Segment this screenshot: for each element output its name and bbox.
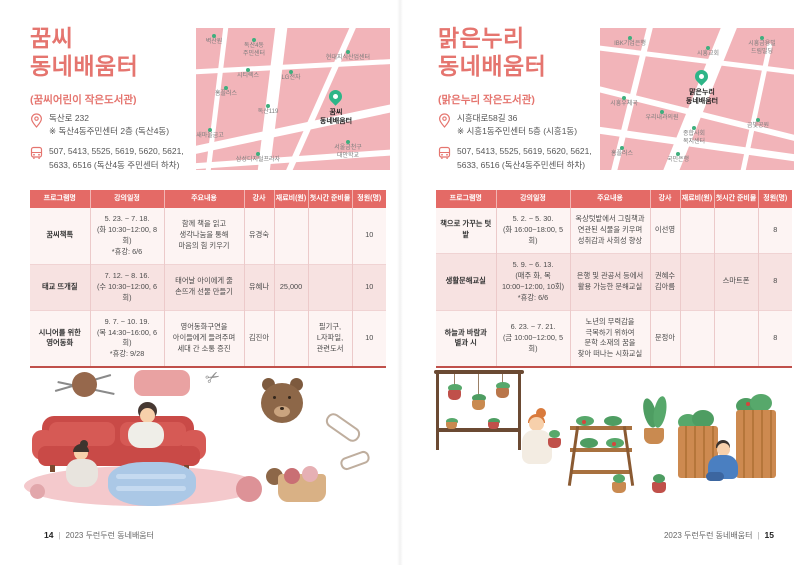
table-cell: 8 — [758, 253, 792, 310]
table-header-cell: 프로그램명 — [30, 190, 90, 208]
table-cell: 6. 23. ~ 7. 21. (금 10:00~12:00, 5회) — [496, 310, 570, 367]
table-cell: 유경숙 — [244, 208, 274, 264]
map-place: 독산4동 주민센터 — [225, 38, 283, 59]
table-cell: 은행 및 관공서 등에서 활용 가능한 문해교실 — [570, 253, 650, 310]
table-cell: 책으로 가꾸는 텃밭 — [436, 208, 496, 253]
safety-pin-icon — [323, 410, 363, 444]
table-header-cell: 강의일정 — [90, 190, 164, 208]
footer-divider: | — [58, 531, 60, 540]
address-row: 독산로 232※ 독산4동주민센터 2층 (독산4동) — [30, 112, 192, 138]
table-cell: 10 — [352, 310, 386, 367]
table-cell — [680, 253, 714, 310]
ground-pot — [652, 482, 666, 493]
table-header-cell: 주요내용 — [164, 190, 244, 208]
table-header-cell: 강의일정 — [496, 190, 570, 208]
table-cell: 필기구, L자파일, 관련도서 — [308, 310, 352, 367]
table-cell: 문정아 — [650, 310, 680, 367]
table-header-cell: 주요내용 — [570, 190, 650, 208]
map-place: 서울금천구 대안학교 — [319, 140, 377, 161]
knitted-blanket — [108, 462, 196, 506]
table-cell: 하늘과 바람과 별과 시 — [436, 310, 496, 367]
table-cell — [308, 208, 352, 264]
table-row: 태교 뜨개질7. 12. ~ 8. 16. (수 10:30~12:00, 6회… — [30, 264, 386, 310]
table-cell: 25,000 — [274, 264, 308, 310]
table-cell — [714, 310, 758, 367]
shelf-pot — [446, 422, 457, 429]
address-line1: 독산로 232 — [49, 113, 89, 123]
yarn-ball-pink — [236, 476, 262, 502]
knitted-swatch — [134, 370, 190, 396]
address-text: 독산로 232※ 독산4동주민센터 2층 (독산4동) — [49, 112, 169, 138]
hanging-rack-bar — [434, 370, 524, 374]
table-cell: 김진아 — [244, 310, 274, 367]
table-cell: 9. 7. ~ 10. 19. (목 14:30~16:00, 6회) *휴강:… — [90, 310, 164, 367]
map-place: 홈플러스 — [197, 86, 255, 99]
map-marker-pin — [326, 87, 344, 105]
table-cell: 유혜나 — [244, 264, 274, 310]
table-cell: 5. 2. ~ 5. 30. (화 16:00~18:00, 5회) — [496, 208, 570, 253]
person-head — [140, 408, 155, 423]
hanging-pot — [472, 400, 485, 410]
table-cell: 7. 12. ~ 8. 16. (수 10:30~12:00, 6회) — [90, 264, 164, 310]
address-line1: 시흥대로58길 36 — [457, 113, 517, 123]
table-cell: 생활문해교실 — [436, 253, 496, 310]
bear-face — [261, 383, 303, 423]
table-cell: 권혜수 김아름 — [650, 253, 680, 310]
table-header-row: 프로그램명강의일정주요내용강사재료비(원)첫시간 준비물정원(명) — [30, 190, 386, 208]
map-place: 시흥교회 — [679, 46, 737, 59]
map-marker-label: 꿈씨 동네배움터 — [301, 108, 371, 126]
map-place: LG전자 — [262, 70, 320, 83]
table-cell: 태어날 아이에게 줄 손뜨개 선물 만들기 — [164, 264, 244, 310]
left-page: 꿈씨 동네배움터 (꿈씨어린이 작은도서관) 독산로 232※ 독산4동주민센터… — [0, 0, 400, 565]
bus-icon — [30, 145, 44, 171]
table-cell: 영어동화구연을 아이들에게 들려주며 세대 간 소통 증진 — [164, 310, 244, 367]
stand-plant — [580, 438, 598, 448]
table-cell: 8 — [758, 208, 792, 253]
map-place: 금빛공원 — [729, 118, 787, 131]
map-place: 현대지식산업센터 — [319, 50, 377, 63]
table-cell: 5. 23. ~ 7. 18. (화 10:30~12:00, 8회) *휴강:… — [90, 208, 164, 264]
table-header-cell: 재료비(원) — [680, 190, 714, 208]
address-text: 시흥대로58길 36※ 시흥1동주민센터 5층 (시흥1동) — [457, 112, 577, 138]
gardener-leg — [706, 472, 724, 481]
table-cell: 5. 9. ~ 6. 13. (매주 화, 목 10:00~12:00, 10회… — [496, 253, 570, 310]
table-header-cell: 프로그램명 — [436, 190, 496, 208]
bus-text: 507, 5413, 5525, 5619, 5620, 5621,5633, … — [49, 145, 184, 171]
tall-plant-pot — [644, 428, 664, 444]
hanging-pot — [496, 388, 509, 398]
knitting-illustration: ✂ — [24, 370, 374, 515]
address-line2: ※ 시흥1동주민센터 5층 (시흥1동) — [457, 126, 577, 136]
held-pot — [548, 438, 561, 448]
right-page: 맑은누리 동네배움터 (맑은누리 작은도서관) 시흥대로58길 36※ 시흥1동… — [400, 0, 800, 565]
hanging-rack-post — [436, 372, 439, 450]
address-line2: ※ 독산4동주민센터 2층 (독산4동) — [49, 126, 169, 136]
program-table: 프로그램명강의일정주요내용강사재료비(원)첫시간 준비물정원(명) 책으로 가꾸… — [436, 190, 792, 368]
table-cell: 시니어를 위한 영어동화 — [30, 310, 90, 367]
footer-right: 2023 두런두런 동네배움터|15 — [664, 530, 774, 541]
scissors-icon: ✂ — [202, 366, 224, 390]
stand-shelf — [570, 470, 632, 474]
stand-plant — [604, 416, 622, 426]
bear-nose — [280, 407, 284, 410]
bear-eye — [273, 396, 276, 399]
bus-line2: 5633, 6516 (독산4동주민센터 하차) — [457, 160, 585, 170]
map-place: 시흥금융빌 드림빌딩 — [733, 36, 791, 57]
table-header-cell: 재료비(원) — [274, 190, 308, 208]
table-cell: 스마트폰 — [714, 253, 758, 310]
page-title: 맑은누리 동네배움터 — [438, 24, 546, 80]
bus-line1: 507, 5413, 5525, 5619, 5620, 5621, — [457, 146, 592, 156]
table-cell: 태교 뜨개질 — [30, 264, 90, 310]
tomato — [612, 442, 616, 446]
table-cell — [714, 208, 758, 253]
gardener-head — [529, 417, 544, 431]
table-cell: 8 — [758, 310, 792, 367]
map-place: 새마을금고 — [196, 128, 239, 141]
yarn-ball-small — [30, 484, 45, 499]
address-row: 시흥대로58길 36※ 시흥1동주민센터 5층 (시흥1동) — [438, 112, 600, 138]
table-header-cell: 강사 — [650, 190, 680, 208]
table-cell — [680, 310, 714, 367]
shelf-pot — [488, 422, 499, 429]
yarn-ball-in-basket — [302, 466, 318, 482]
blanket-stripe — [116, 474, 186, 479]
table-cell — [680, 208, 714, 253]
table-cell: 10 — [352, 208, 386, 264]
table-cell — [308, 264, 352, 310]
hanging-pot — [448, 390, 461, 400]
table-cell: 10 — [352, 264, 386, 310]
table-header-cell: 첫시간 준비물 — [714, 190, 758, 208]
table-cell — [274, 208, 308, 264]
table-row: 꿈씨책톡5. 23. ~ 7. 18. (화 10:30~12:00, 8회) … — [30, 208, 386, 264]
footer-text: 2023 두런두런 동네배움터 — [66, 531, 154, 540]
hanging-rack-post — [518, 372, 521, 450]
map-place: 독산119 — [239, 104, 297, 117]
gardener-body — [522, 430, 552, 464]
footer-divider: | — [757, 531, 759, 540]
page-number: 14 — [44, 530, 53, 540]
yarn-ball-in-basket — [284, 468, 300, 484]
person-body — [128, 422, 164, 448]
map-place: 종합사회 복지센터 — [665, 126, 723, 147]
stand-leg — [568, 426, 579, 486]
location-map: IBK기업은행 시흥교회 시흥금융빌 드림빌딩 시흥우체국 우리내과의원 종합사… — [600, 28, 794, 170]
location-pin-icon — [438, 112, 452, 138]
ground-pot — [612, 482, 626, 493]
table-row: 시니어를 위한 영어동화9. 7. ~ 10. 19. (목 14:30~16:… — [30, 310, 386, 367]
table-header-cell: 강사 — [244, 190, 274, 208]
tomato — [582, 420, 586, 424]
footer-text: 2023 두런두런 동네배움터 — [664, 531, 752, 540]
table-row: 하늘과 바람과 별과 시6. 23. ~ 7. 21. (금 10:00~12:… — [436, 310, 792, 367]
stand-shelf — [570, 448, 632, 452]
safety-pin-icon — [339, 449, 372, 471]
table-row: 책으로 가꾸는 텃밭5. 2. ~ 5. 30. (화 16:00~18:00,… — [436, 208, 792, 253]
held-plant — [549, 430, 560, 438]
table-header-cell: 첫시간 준비물 — [308, 190, 352, 208]
couch-leg — [50, 465, 55, 472]
location-pin-icon — [30, 112, 44, 138]
table-cell: 꿈씨책톡 — [30, 208, 90, 264]
table-cell — [274, 310, 308, 367]
info-block: 시흥대로58길 36※ 시흥1동주민센터 5층 (시흥1동) 507, 5413… — [438, 112, 600, 179]
raised-bed — [736, 410, 776, 478]
info-block: 독산로 232※ 독산4동주민센터 2층 (독산4동) 507, 5413, 5… — [30, 112, 192, 179]
table-header-cell: 정원(명) — [352, 190, 386, 208]
ground-plant — [613, 474, 625, 483]
table-cell: 노년의 무력감을 극복하기 위하여 문학 소재의 꿈을 찾아 떠나는 시화교실 — [570, 310, 650, 367]
yarn-ball-brown — [72, 372, 97, 397]
page-title: 꿈씨 동네배움터 — [30, 24, 138, 80]
bus-line2: 5633, 6516 (독산4동 주민센터 하차) — [49, 160, 179, 170]
table-header-cell: 정원(명) — [758, 190, 792, 208]
map-place: 시흥우체국 — [600, 96, 653, 109]
blanket-stripe — [116, 486, 186, 491]
map-marker-label: 맑은누리 동네배움터 — [667, 88, 737, 106]
table-header-row: 프로그램명강의일정주요내용강사재료비(원)첫시간 준비물정원(명) — [436, 190, 792, 208]
tomato — [746, 402, 750, 406]
map-place: 홈플러스 — [600, 146, 651, 159]
bear-eye — [288, 396, 291, 399]
tall-plant-leaf — [651, 395, 668, 429]
bus-icon — [438, 145, 452, 171]
table-row: 생활문해교실5. 9. ~ 6. 13. (매주 화, 목 10:00~12:0… — [436, 253, 792, 310]
footer-left: 14|2023 두런두런 동네배움터 — [44, 530, 154, 541]
person-body — [66, 459, 98, 487]
location-map: 벽산원 독산4동 주민센터 시티렉스 LG전자 홈플러스 독산119 새마을금고… — [196, 28, 390, 170]
bus-row: 507, 5413, 5525, 5619, 5620, 5621,5633, … — [30, 145, 192, 171]
map-place: 국민은행 — [649, 152, 707, 165]
bus-text: 507, 5413, 5525, 5619, 5620, 5621,5633, … — [457, 145, 592, 171]
map-place: 우리내과의원 — [633, 110, 691, 123]
page-number: 15 — [765, 530, 774, 540]
page-subtitle: (꿈씨어린이 작은도서관) — [30, 92, 137, 107]
map-place: 삼성디지털프라자 — [229, 152, 287, 165]
ground-plant — [653, 474, 665, 483]
table-cell: 함께 책을 읽고 생각나눔을 통해 마음의 힘 키우기 — [164, 208, 244, 264]
map-place: IBK기업은행 — [601, 36, 659, 49]
table-cell: 이선영 — [650, 208, 680, 253]
bus-line1: 507, 5413, 5525, 5619, 5620, 5621, — [49, 146, 184, 156]
program-table: 프로그램명강의일정주요내용강사재료비(원)첫시간 준비물정원(명) 꿈씨책톡5.… — [30, 190, 386, 368]
page-subtitle: (맑은누리 작은도서관) — [438, 92, 535, 107]
table-cell: 옥상텃밭에서 그림책과 연관된 식물을 키우며 성취감과 사회성 향상 — [570, 208, 650, 253]
gardening-illustration — [430, 370, 786, 515]
bus-row: 507, 5413, 5525, 5619, 5620, 5621,5633, … — [438, 145, 600, 171]
